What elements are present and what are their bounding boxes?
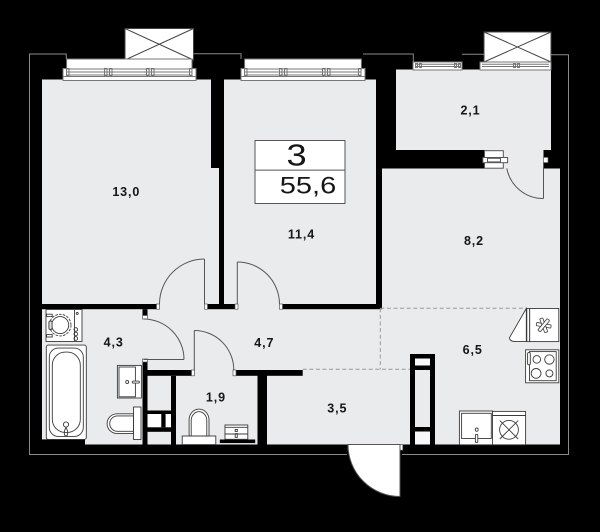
- svg-text:4,3: 4,3: [104, 336, 124, 350]
- svg-text:8,2: 8,2: [464, 234, 484, 248]
- svg-text:2,1: 2,1: [460, 104, 480, 118]
- svg-text:13,0: 13,0: [112, 185, 140, 199]
- svg-text:55,6: 55,6: [280, 172, 336, 199]
- svg-text:6,5: 6,5: [463, 343, 483, 357]
- svg-text:4,7: 4,7: [254, 336, 274, 350]
- svg-text:3: 3: [287, 138, 307, 173]
- svg-text:1,9: 1,9: [206, 391, 226, 405]
- svg-text:3,5: 3,5: [327, 402, 347, 416]
- svg-text:11,4: 11,4: [288, 228, 315, 242]
